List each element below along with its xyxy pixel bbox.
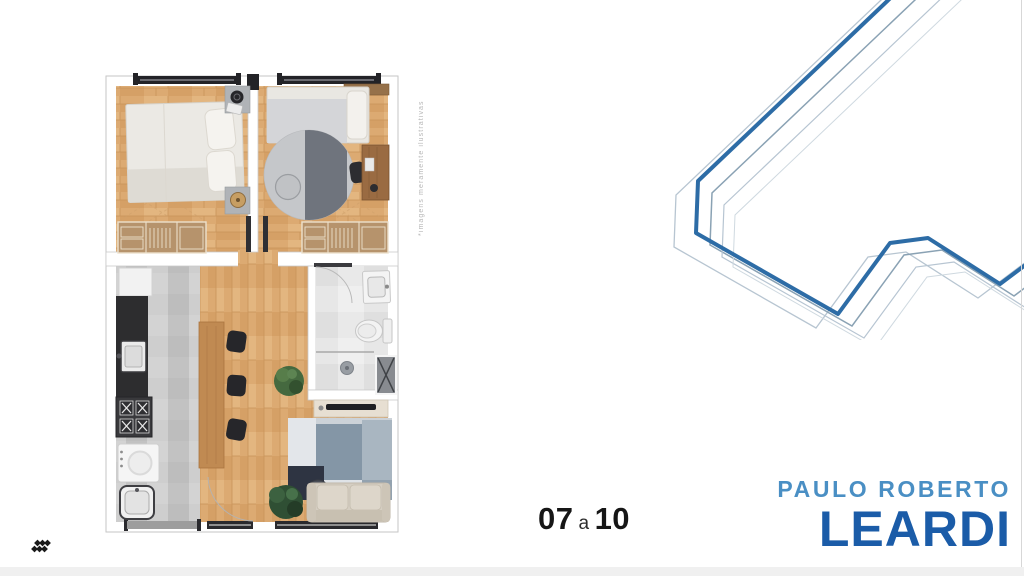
unit-range-label: 07a10 (538, 501, 630, 537)
plant-small (274, 366, 304, 396)
unit-from: 07 (538, 501, 573, 536)
vanity-sink (362, 271, 390, 304)
bottom-shadow-strip (0, 567, 1024, 576)
chair (225, 418, 247, 442)
brand-logo: PAULO ROBERTO LEARDI (777, 478, 1011, 554)
chair (226, 374, 246, 396)
brand-name-top: PAULO ROBERTO (777, 478, 1011, 501)
footprint-echo-2 (722, 0, 1024, 338)
door-leaf-bedroom-1 (246, 216, 251, 252)
fridge (119, 268, 152, 296)
unit-connector: a (578, 513, 589, 534)
hall-opening (238, 250, 278, 268)
chair (226, 330, 248, 353)
dining-table (199, 322, 224, 468)
plant-large (269, 485, 303, 519)
sofa (307, 483, 390, 522)
unit-footprint-outline (660, 0, 1024, 340)
floor-plan (100, 70, 434, 536)
diamond-cluster-icon (29, 536, 51, 555)
tv (326, 404, 376, 410)
wall-bathroom-left (308, 266, 316, 390)
footprint-echo-left (674, 0, 1024, 328)
unit-to: 10 (595, 501, 630, 536)
bathroom-door (314, 263, 352, 267)
pouf (276, 175, 301, 200)
brand-name-main: LEARDI (777, 504, 1011, 554)
desk (362, 145, 389, 200)
door-leaf-bedroom-2 (263, 216, 268, 252)
right-edge-divider (1021, 0, 1022, 576)
speaker (231, 91, 244, 104)
bedroom-1-furniture (126, 86, 250, 214)
disclaimer-caption: *imagens meramente ilustrativas (418, 72, 431, 236)
